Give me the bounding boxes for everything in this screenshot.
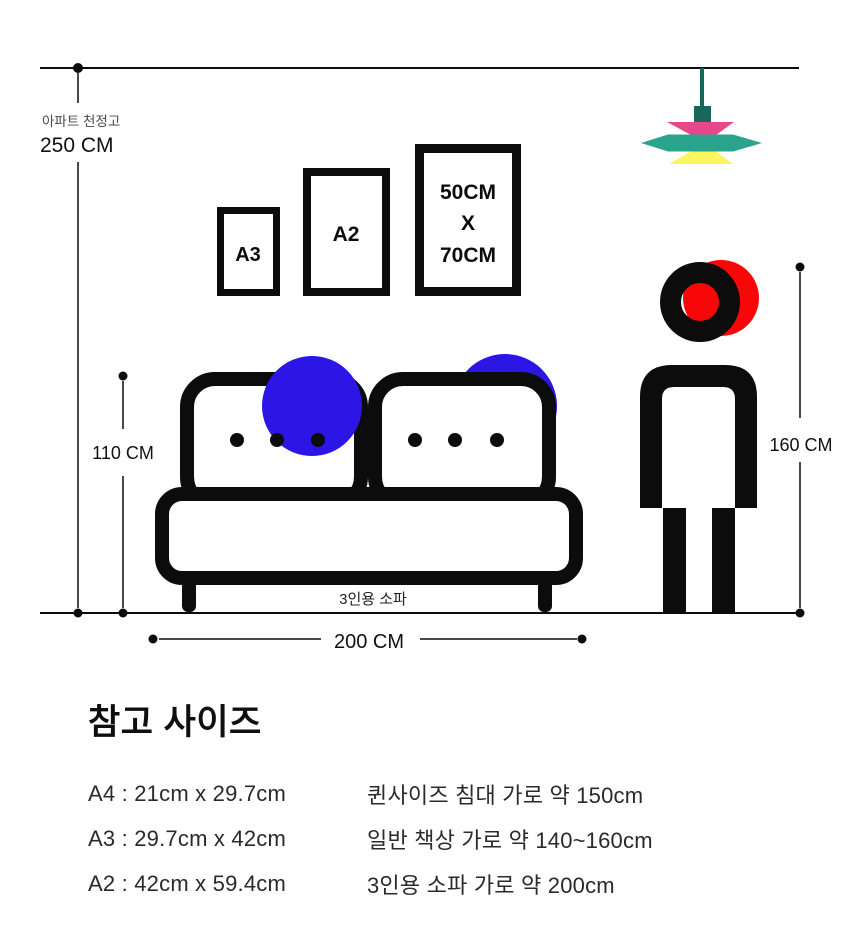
person-height-measure: 160 CM: [769, 263, 832, 618]
ceiling-height-measure: 아파트 천정고 250 CM: [40, 63, 120, 618]
person-leg-right: [712, 508, 735, 612]
sofa-button: [230, 433, 244, 447]
sofa-leg-right: [538, 580, 552, 612]
person-leg-left: [663, 508, 686, 612]
ceiling-caption: 아파트 천정고: [42, 114, 120, 129]
sofa-width-label: 200 CM: [334, 631, 404, 653]
sofa-seat: [162, 494, 576, 578]
sofa-backrest-right: [375, 379, 549, 505]
reference-rows: A4 : 21cm x 29.7cm 퀸사이즈 침대 가로 약 150cm A3…: [88, 771, 653, 906]
frame-a2: A2: [307, 172, 386, 292]
reference-size-section: 참고 사이즈 A4 : 21cm x 29.7cm 퀸사이즈 침대 가로 약 1…: [88, 694, 653, 906]
furniture-size-value: 3인용 소파 가로 약 200cm: [367, 868, 615, 900]
frame-a3-label: A3: [235, 244, 261, 266]
sofa-width-measure: 200 CM: [149, 631, 587, 653]
reference-row-a4: A4 : 21cm x 29.7cm 퀸사이즈 침대 가로 약 150cm: [88, 771, 653, 816]
lamp-shade-teal: [641, 135, 762, 152]
lamp-shade-yellow: [669, 152, 733, 165]
measure-dot: [796, 263, 805, 272]
section-title: 참고 사이즈: [88, 694, 653, 745]
measure-dot: [74, 609, 83, 618]
measure-dot: [119, 609, 128, 618]
frame-a2-label: A2: [333, 223, 360, 246]
frame-50x70-line2: X: [461, 212, 475, 235]
lamp-cord: [700, 68, 704, 109]
measure-dot: [149, 635, 158, 644]
measure-dot: [119, 372, 128, 381]
sofa-height-measure: 110 CM: [92, 372, 154, 618]
person-illustration: [640, 260, 759, 612]
sofa-illustration: 3인용 소파: [162, 354, 576, 612]
paper-size-value: A3 : 29.7cm x 42cm: [88, 826, 367, 852]
furniture-size-value: 퀸사이즈 침대 가로 약 150cm: [367, 778, 643, 810]
furniture-size-value: 일반 책상 가로 약 140~160cm: [367, 823, 653, 855]
sofa-button: [448, 433, 462, 447]
paper-size-value: A4 : 21cm x 29.7cm: [88, 781, 367, 807]
measure-dot: [796, 609, 805, 618]
measure-dot: [73, 63, 83, 73]
sofa-button: [270, 433, 284, 447]
sofa-caption: 3인용 소파: [339, 591, 407, 608]
sofa-height-label: 110 CM: [92, 443, 154, 463]
frame-a3: A3: [221, 211, 277, 293]
pendant-lamp: [641, 68, 762, 164]
reference-row-a2: A2 : 42cm x 59.4cm 3인용 소파 가로 약 200cm: [88, 861, 653, 906]
sofa-button: [311, 433, 325, 447]
frame-50x70-line1: 50CM: [440, 181, 496, 204]
room-size-diagram: 아파트 천정고 250 CM 110 CM 160 CM 200 CM A3 A…: [0, 0, 860, 660]
frame-50x70-line3: 70CM: [440, 244, 496, 267]
lamp-socket: [694, 106, 711, 123]
ceiling-height-label: 250 CM: [40, 134, 114, 157]
lamp-shade-pink: [667, 122, 734, 135]
reference-row-a3: A3 : 29.7cm x 42cm 일반 책상 가로 약 140~160cm: [88, 816, 653, 861]
person-torso: [640, 365, 757, 508]
measure-dot: [578, 635, 587, 644]
paper-size-value: A2 : 42cm x 59.4cm: [88, 871, 367, 897]
sofa-button: [490, 433, 504, 447]
sofa-leg-left: [182, 580, 196, 612]
person-height-label: 160 CM: [769, 435, 832, 455]
sofa-button: [408, 433, 422, 447]
frame-50x70: 50CM X 70CM: [420, 149, 517, 292]
